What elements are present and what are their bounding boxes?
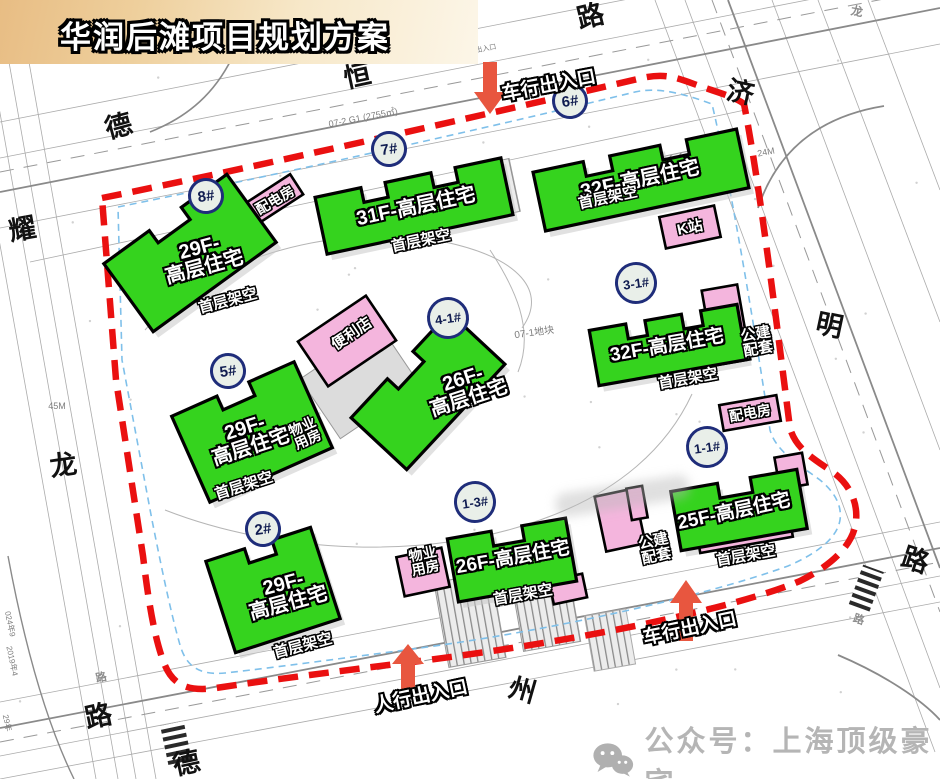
aux-label-wuye-yongfang-5: 物业用房 [286,414,323,451]
aux-label-line: 配电房 [253,183,297,216]
aux-label-wuye-yongfang-btm: 物业用房 [407,544,440,578]
aux-label-gongjian-peitao-31: 公建配套 [740,324,775,359]
gray-road-name-3: 路 [851,610,866,629]
aux-label-gongjian-peitao-btm: 公建配套 [637,531,673,567]
labels-layer: 29F-高层住宅首层架空31F-高层住宅首层架空32F-高层住宅首层架空32F-… [0,0,940,779]
road-name-10: 德 [169,739,204,779]
road-name-8: 州 [505,666,542,711]
road-name-5: 济 [724,68,759,112]
entrance-label-2: 车行出入口 [642,610,739,649]
aux-label-line: 用房 [410,558,440,578]
road-name-9: 路 [81,692,116,736]
aux-label-line: 配电房 [728,402,772,423]
plan-label-3: 24M [756,145,775,158]
building-label-line: 25F-高层住宅 [676,491,793,534]
unit-circle-7: 7# [369,129,410,170]
unit-circle-5: 5# [208,351,249,392]
building-label-line: 31F-高层住宅 [355,184,478,229]
road-name-0: 路 [572,0,608,36]
plan-label-0: 07-2 G1 (2755㎡) [327,104,398,130]
building-label-1-3: 26F-高层住宅 [455,538,572,577]
unit-circle-1-1: 1-1# [683,423,730,470]
road-name-6: 明 [813,301,848,345]
aux-label-line: 配套 [742,339,774,359]
unit-circle-2: 2# [243,509,284,550]
building-label-7: 31F-高层住宅 [355,184,478,229]
building-label-line: 26F-高层住宅 [455,538,572,577]
wechat-icon [592,741,634,779]
aux-label-line: 便利店 [329,315,375,353]
road-name-4: 龙 [47,442,79,484]
podium-note-1-1: 首层架空 [715,543,777,568]
plan-label-4: 45M [48,401,66,411]
podium-note-3-1: 首层架空 [657,366,719,391]
gray-road-name-2: 路 [94,668,108,686]
entrance-label-1: 人行出入口 [373,678,470,717]
unit-circle-8: 8# [186,176,227,217]
building-label-4-1: 26F-高层住宅 [422,357,511,421]
site-plan: 29F-高层住宅首层架空31F-高层住宅首层架空32F-高层住宅首层架空32F-… [0,0,940,779]
aux-label-bianlidian: 便利店 [329,315,375,353]
road-name-3: 耀 [5,205,38,248]
plan-label-7: 2019年4 [3,645,20,677]
plan-label-8: 29年 [0,714,14,733]
unit-circle-4-1: 4-1# [424,294,471,341]
title-banner: 华润后滩项目规划方案 [0,0,478,64]
podium-note-1-3: 首层架空 [492,582,554,607]
aux-label-peidianfang-top: 配电房 [253,183,297,216]
building-label-3-1: 32F-高层住宅 [609,326,726,365]
podium-note-8: 首层架空 [197,286,259,316]
plan-label-1: 07-1地块 [513,321,555,341]
building-label-8: 29F-高层住宅 [158,228,246,288]
building-label-5: 29F-高层住宅 [204,406,293,470]
road-name-7: 路 [897,535,935,580]
aux-label-line: 配套 [640,546,673,567]
building-label-line: 32F-高层住宅 [609,326,726,365]
plan-label-6: 024年9 [2,610,18,638]
aux-label-line: K站 [676,218,704,238]
podium-note-2: 首层架空 [272,631,334,661]
building-label-2: 29F-高层住宅 [242,564,330,624]
podium-note-7: 首层架空 [390,227,452,254]
wechat-watermark: 公众号：上海顶级豪宅 [592,718,940,779]
building-label-1-1: 25F-高层住宅 [676,491,793,534]
wechat-account-text: 公众号：上海顶级豪宅 [644,718,940,779]
unit-circle-1-3: 1-3# [451,478,498,525]
road-name-2: 德 [100,102,136,147]
page-title: 华润后滩项目规划方案 [60,12,390,57]
podium-note-5: 首层架空 [213,469,275,502]
aux-label-k-zhan: K站 [676,218,704,238]
unit-circle-3-1: 3-1# [612,259,659,306]
gray-road-name-0: 龙 [850,2,865,21]
aux-label-peidianfang-right: 配电房 [728,402,772,423]
